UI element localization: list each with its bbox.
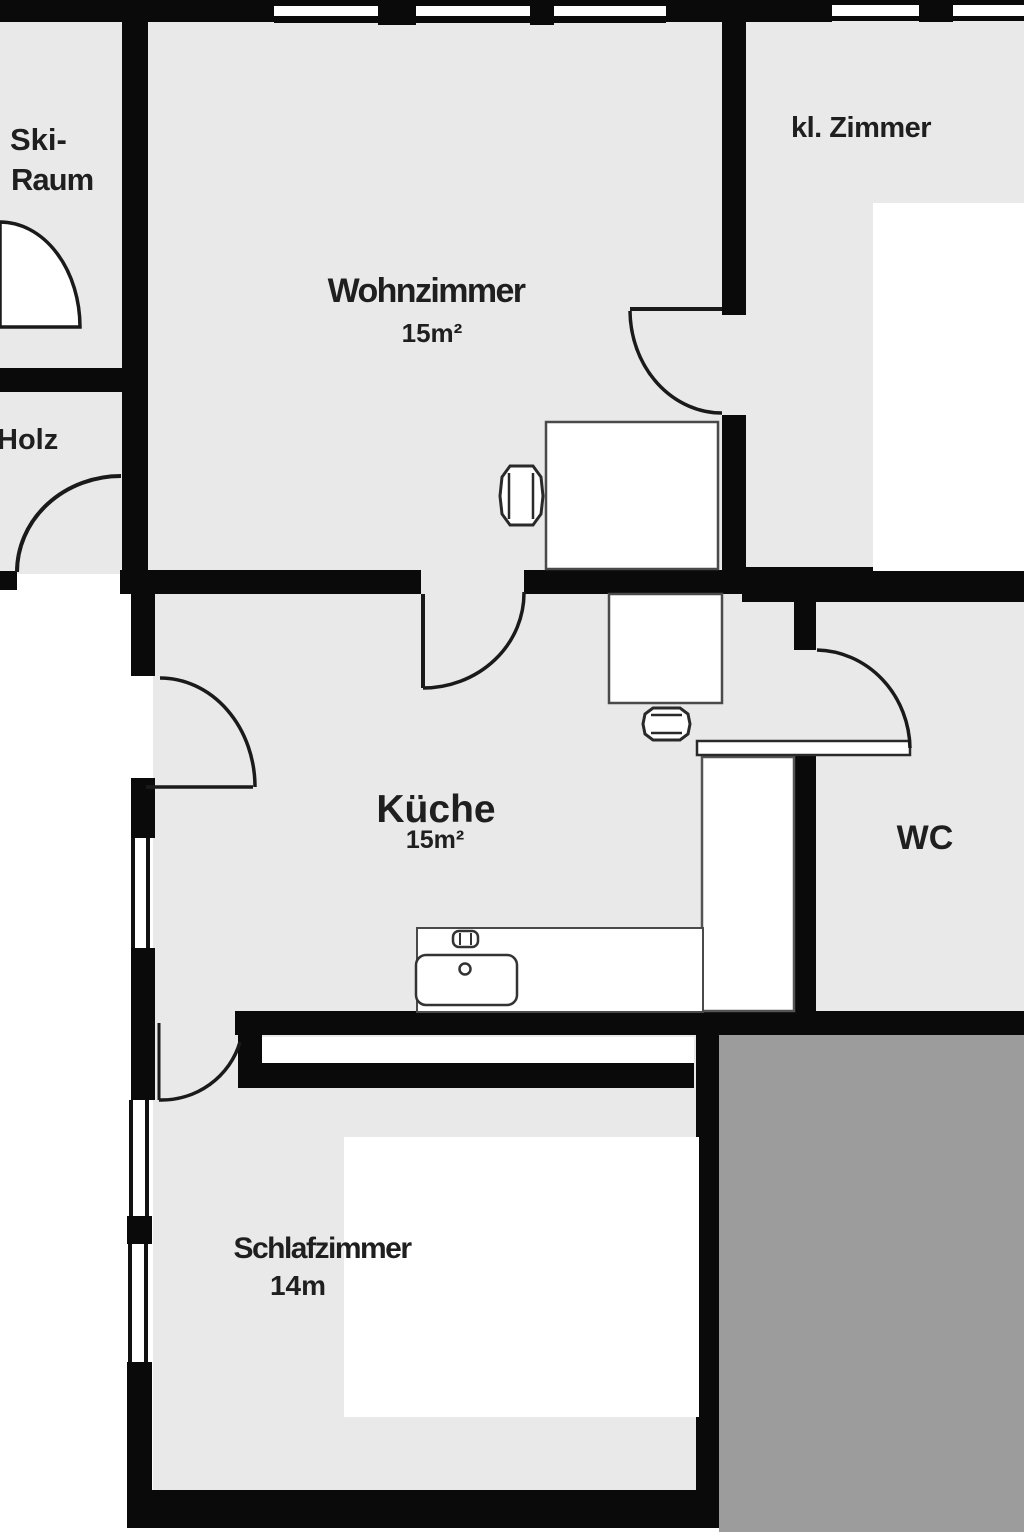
svg-text:Raum: Raum (11, 162, 93, 197)
svg-text:Küche: Küche (376, 788, 495, 831)
svg-text:14m: 14m (270, 1270, 326, 1301)
svg-text:WC: WC (897, 819, 954, 857)
svg-text:Wohnzimmer: Wohnzimmer (328, 272, 526, 310)
svg-text:15m²: 15m² (406, 826, 464, 854)
svg-text:15m²: 15m² (402, 318, 463, 348)
svg-text:Ski-: Ski- (10, 122, 67, 157)
svg-text:kl. Zimmer: kl. Zimmer (791, 112, 931, 144)
svg-text:Schlafzimmer: Schlafzimmer (233, 1232, 412, 1265)
svg-text:Holz: Holz (0, 424, 58, 456)
